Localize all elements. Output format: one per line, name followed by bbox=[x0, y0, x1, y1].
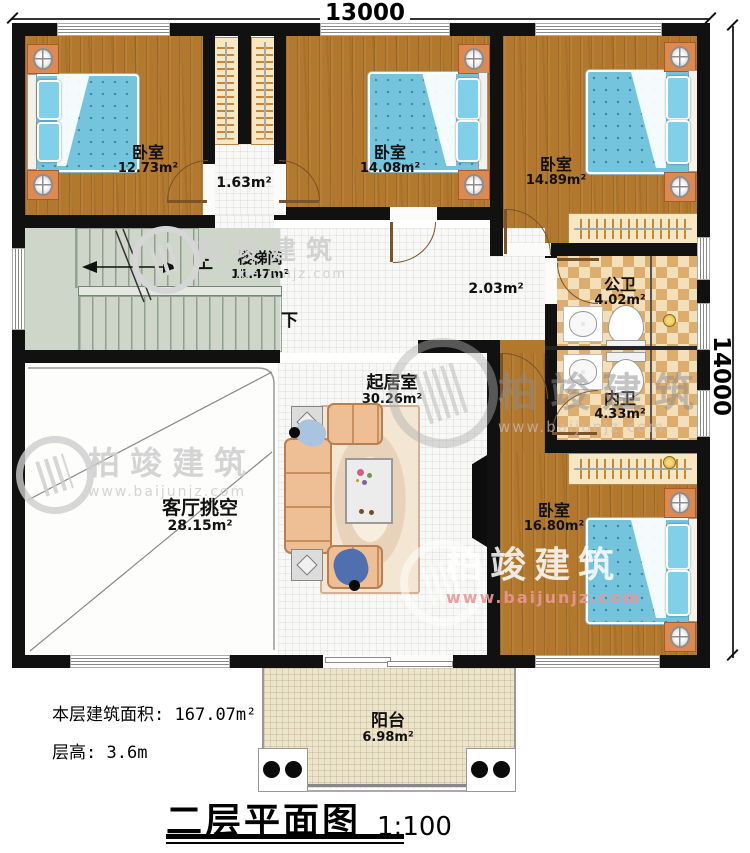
room-label-bedroom-br: 卧室 16.80m² bbox=[514, 502, 594, 534]
wall bbox=[274, 207, 492, 220]
nightstand-lamp bbox=[458, 170, 490, 200]
sofa-main bbox=[284, 438, 332, 554]
room-name: 卧室 bbox=[516, 156, 596, 174]
room-label-stairwell: 楼梯间 11.47m² bbox=[224, 250, 296, 281]
room-name: 楼梯间 bbox=[224, 250, 296, 267]
door-opening bbox=[390, 207, 437, 220]
sliding-door-panel bbox=[325, 657, 391, 663]
room-label-public-bath: 公卫 4.02m² bbox=[584, 276, 656, 308]
window bbox=[535, 23, 662, 36]
window bbox=[12, 248, 25, 330]
wall bbox=[12, 23, 25, 668]
person-head bbox=[289, 427, 300, 438]
hallway-floor-strip bbox=[280, 340, 418, 353]
bed-tm-pillow bbox=[456, 120, 480, 162]
floor-area-text: 本层建筑面积: 167.07m² bbox=[52, 700, 256, 725]
dimension-right-label: 14000 bbox=[710, 336, 734, 398]
wall bbox=[12, 350, 280, 363]
window bbox=[70, 655, 230, 668]
sofa-loveseat bbox=[327, 403, 383, 445]
door-opening bbox=[500, 340, 545, 353]
room-area: 30.26m² bbox=[352, 393, 432, 408]
room-area: 16.80m² bbox=[514, 520, 594, 535]
floor-height-text: 层高: 3.6m bbox=[52, 738, 147, 763]
room-area: 6.98m² bbox=[350, 731, 426, 746]
nightstand-lamp bbox=[664, 42, 696, 72]
nightstand-lamp bbox=[664, 622, 696, 652]
room-name: 公卫 bbox=[584, 276, 656, 294]
wall bbox=[418, 340, 487, 353]
bed-tl-pillow bbox=[37, 80, 61, 120]
floor-height-label: 层高: bbox=[52, 743, 96, 763]
stair-railing bbox=[78, 286, 282, 296]
room-label-hallway: 2.03m² bbox=[464, 282, 528, 298]
room-label-private-bath: 内卫 4.33m² bbox=[584, 390, 656, 422]
plan-scale: 1:100 bbox=[377, 812, 452, 844]
room-label-bedroom-tm: 卧室 14.08m² bbox=[350, 144, 430, 176]
room-name: 客厅挑空 bbox=[140, 498, 260, 519]
wardrobe bbox=[212, 37, 239, 145]
room-label-closet: 1.63m² bbox=[214, 176, 274, 192]
wall bbox=[487, 340, 500, 655]
room-area: 11.47m² bbox=[224, 267, 296, 281]
door-leaf bbox=[557, 258, 599, 261]
room-name: 起居室 bbox=[352, 374, 432, 393]
bed-br-pillow bbox=[666, 570, 690, 616]
side-table bbox=[291, 549, 323, 581]
room-label-void: 客厅挑空 28.15m² bbox=[140, 498, 260, 535]
room-area: 2.03m² bbox=[464, 282, 528, 298]
bed-tr-pillow bbox=[666, 120, 690, 164]
window bbox=[535, 655, 660, 668]
wall bbox=[274, 23, 286, 164]
wall bbox=[490, 220, 503, 256]
column-dot bbox=[471, 761, 488, 778]
nightstand-lamp bbox=[27, 170, 59, 200]
title-underline bbox=[166, 834, 404, 839]
column-dot bbox=[493, 761, 510, 778]
room-area: 12.73m² bbox=[108, 162, 188, 177]
wall bbox=[238, 23, 251, 144]
coffee-table bbox=[345, 458, 393, 524]
stair-lower-flight bbox=[78, 296, 282, 352]
wall bbox=[12, 215, 215, 228]
bed-tm-pillow bbox=[456, 78, 480, 120]
wall bbox=[545, 352, 557, 453]
room-name: 卧室 bbox=[350, 144, 430, 162]
room-label-bedroom-tr: 卧室 14.89m² bbox=[516, 156, 596, 188]
wardrobe bbox=[568, 453, 698, 485]
floor-area-label: 本层建筑面积: bbox=[52, 705, 164, 725]
room-area: 28.15m² bbox=[140, 519, 260, 535]
bed-br-pillow bbox=[666, 524, 690, 570]
title-underline-thin bbox=[166, 842, 404, 844]
room-label-balcony: 阳台 6.98m² bbox=[350, 712, 426, 746]
room-area: 14.89m² bbox=[516, 174, 596, 189]
room-area: 4.02m² bbox=[584, 294, 656, 309]
stair-up-label: 上 bbox=[196, 248, 213, 273]
bed-tr-pillow bbox=[666, 76, 690, 120]
door-opening bbox=[545, 258, 557, 304]
sliding-door-panel bbox=[387, 661, 453, 667]
shower-drain bbox=[663, 314, 676, 327]
bathroom-sink bbox=[563, 306, 603, 342]
wall bbox=[545, 440, 697, 453]
vestibule-passage bbox=[213, 215, 274, 228]
column-dot bbox=[263, 761, 280, 778]
wall bbox=[203, 23, 215, 164]
floor-area-value: 167.07m² bbox=[175, 705, 257, 725]
bed-tl-headboard bbox=[27, 74, 37, 170]
room-name: 内卫 bbox=[584, 390, 656, 408]
window bbox=[57, 23, 170, 36]
room-name: 阳台 bbox=[350, 712, 426, 731]
room-name: 卧室 bbox=[514, 502, 594, 520]
wardrobe bbox=[568, 213, 698, 245]
room-area: 1.63m² bbox=[214, 176, 274, 192]
bed-tl-pillow bbox=[37, 122, 61, 162]
nightstand-lamp bbox=[458, 44, 490, 74]
toilet-bowl bbox=[608, 305, 644, 345]
room-label-living: 起居室 30.26m² bbox=[352, 374, 432, 408]
nightstand-lamp bbox=[27, 44, 59, 74]
column-dot bbox=[285, 761, 302, 778]
dimension-top-label: 13000 bbox=[320, 0, 410, 21]
bath-partition-wall bbox=[545, 346, 697, 350]
nightstand-lamp bbox=[664, 488, 696, 518]
room-label-bedroom-tl: 卧室 12.73m² bbox=[108, 144, 188, 176]
tv bbox=[472, 455, 487, 547]
floor-height-value: 3.6m bbox=[107, 743, 148, 763]
nightstand-lamp bbox=[664, 172, 696, 202]
room-area: 4.33m² bbox=[584, 408, 656, 423]
wall bbox=[490, 23, 503, 220]
bathroom-sink bbox=[563, 354, 603, 390]
floor-plan: 卧室 12.73m² 1.63m² 卧室 14.08m² 卧室 14.89m² … bbox=[0, 0, 750, 853]
window bbox=[697, 237, 710, 280]
stair-upper-flight bbox=[75, 228, 199, 288]
room-name: 卧室 bbox=[108, 144, 188, 162]
wall bbox=[551, 243, 697, 256]
person-head bbox=[349, 580, 360, 591]
room-area: 14.08m² bbox=[350, 162, 430, 177]
stair-down-label: 下 bbox=[281, 306, 298, 331]
shower-drain bbox=[663, 456, 676, 469]
